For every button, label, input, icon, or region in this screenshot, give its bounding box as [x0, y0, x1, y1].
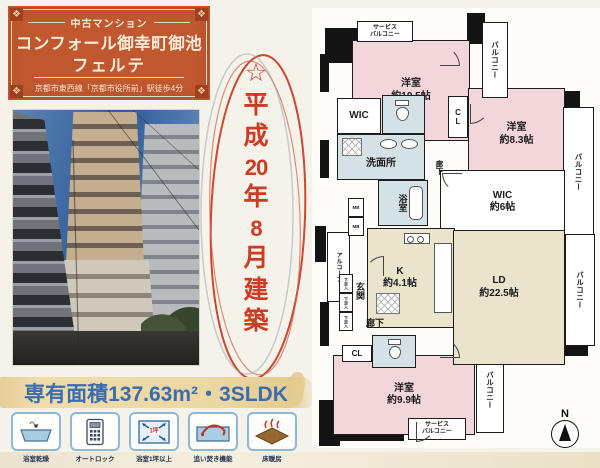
room-size: 約22.5帖	[479, 288, 518, 301]
balcony-label: バルコニー	[575, 271, 586, 309]
floor-heating-icon	[253, 418, 291, 446]
toilet-bowl-icon	[396, 107, 409, 121]
property-category: 中古マンション	[71, 15, 148, 30]
room-living-dining: LD 約22.5帖	[453, 230, 565, 365]
wall-segment	[320, 140, 329, 178]
service-balcony-label: サービス	[370, 25, 400, 32]
sink-icon	[380, 139, 397, 149]
room-label: 洋室 約9.9帖	[387, 383, 421, 408]
wall-segment	[320, 54, 329, 92]
built-date-char: 建	[243, 275, 268, 307]
room-wic-small: WIC	[337, 98, 381, 134]
photo-power-lines	[13, 110, 199, 365]
built-date-char: ☆	[245, 58, 267, 90]
divider	[28, 22, 65, 23]
feature-label: 浴室1坪以上	[136, 453, 172, 463]
service-balcony-label: バルコニー	[370, 32, 400, 39]
balcony-top: バルコニー	[482, 22, 508, 98]
autolock-keypad-icon	[76, 418, 114, 446]
bath-dryer-icon	[17, 418, 55, 446]
room-name: 洋室	[391, 78, 430, 91]
divider	[154, 22, 191, 23]
compass-needle-icon	[559, 424, 571, 441]
property-subtitle: フェルテ	[8, 52, 210, 76]
listing-title-box: ❖ ❖ ❖ ❖ 中古マンション コンフォール御幸町御池 フェルテ 京都市東西線「…	[8, 6, 210, 100]
toilet-tank	[388, 339, 401, 345]
room-label: LD 約22.5帖	[479, 275, 518, 300]
room-washroom: 洗面所	[337, 134, 425, 180]
built-date-char: 成	[243, 121, 268, 153]
kitchen-counter	[434, 243, 452, 313]
shoe-cabinet-label: 下足入	[343, 278, 349, 290]
shoe-cabinet-label: 下足入	[343, 316, 349, 328]
washer-space	[342, 138, 362, 156]
built-date-char: 8	[250, 214, 261, 244]
area-banner: 専有面積137.63m²・3SLDK	[0, 377, 312, 408]
toilet-room-top	[382, 95, 425, 134]
closet-bottom: CL	[342, 345, 372, 362]
room-name: WIC	[490, 190, 516, 203]
room-label: 洋室 約8.3帖	[500, 122, 534, 147]
feature-label: 追い焚き機能	[194, 453, 233, 463]
compass-circle	[551, 420, 579, 448]
property-title: コンフォール御幸町御池	[8, 30, 210, 54]
feature-floor-heating: 床暖房	[246, 412, 298, 464]
feature-label: 床暖房	[262, 453, 282, 463]
shoe-cabinet: 下足入	[339, 274, 353, 293]
feature-autolock: オートロック	[69, 412, 121, 464]
balcony-label: バルコニー	[485, 371, 496, 409]
sink-icon	[401, 139, 418, 149]
station-access-text: 京都市東西線「京都市役所前」駅徒歩4分	[8, 83, 210, 94]
feature-bath-size: 1坪 浴室1坪以上	[128, 412, 180, 464]
room-size: 約9.9帖	[387, 395, 421, 408]
built-date-char: 年	[243, 182, 268, 214]
room-name: 洗面所	[366, 158, 396, 171]
meter-box: MB	[348, 217, 364, 236]
building-photo	[13, 110, 199, 365]
feature-label: 浴室乾燥	[23, 453, 49, 463]
toilet-tank	[395, 100, 409, 106]
entrance-label: 玄関	[354, 282, 367, 300]
toilet-bowl-icon	[389, 346, 401, 359]
room-name: 洋室	[500, 122, 534, 135]
shoe-cabinet: 下足入	[339, 293, 353, 312]
shoe-cabinet: 下足入	[339, 312, 353, 331]
closet-label: CL	[352, 349, 363, 359]
room-size: 約4.1帖	[383, 278, 417, 291]
room-size: 約6帖	[490, 202, 516, 215]
stove-icon	[404, 233, 430, 244]
shoe-cabinet-label: 下足入	[343, 297, 349, 309]
hallway-label: 廊下	[366, 318, 384, 329]
room-label: サービス バルコニー	[370, 25, 400, 39]
bath-size-icon-text: 1坪	[148, 428, 159, 435]
meter-box: MB	[348, 198, 364, 217]
floorplan: 洋室 約10.5帖 洋室 約8.3帖 洋室 約9.9帖 サービス バルコニー サ…	[312, 8, 600, 448]
room-label: WIC 約6帖	[490, 190, 516, 215]
built-date-char: 月	[243, 243, 268, 275]
room-size: 約8.3帖	[500, 135, 534, 148]
closet-top: CL	[448, 96, 468, 138]
balcony-label: バルコニー	[490, 41, 501, 79]
room-bath: 浴室	[378, 180, 428, 226]
built-date-char: 20	[245, 153, 267, 183]
built-date-char: 築	[243, 306, 268, 338]
compass-north-label: N	[550, 408, 580, 420]
wall-segment	[315, 226, 326, 262]
corner-ornament-icon: ❖	[10, 8, 23, 21]
service-balcony-top: サービス バルコニー	[357, 21, 413, 42]
room-name: WIC	[349, 110, 368, 123]
room-name: LD	[479, 275, 518, 288]
room-name: K	[383, 266, 417, 279]
floor-area-text: 専有面積137.63m²・3SLDK	[24, 378, 288, 408]
built-date-vertical-text: ☆ 平 成 20 年 8 月 建 築	[231, 58, 281, 338]
feature-bath-dryer: 浴室乾燥	[10, 412, 62, 464]
entrance-floor	[376, 293, 400, 314]
reheat-function-icon	[194, 418, 232, 446]
room-label: K 約4.1帖	[383, 266, 417, 291]
meter-box-label: MB	[353, 205, 360, 211]
closet-label: CL	[454, 108, 463, 126]
corner-ornament-icon: ❖	[195, 8, 208, 21]
bathtub-icon	[409, 186, 423, 220]
built-date-char: 平	[243, 90, 268, 122]
balcony-right-upper: バルコニー	[563, 107, 594, 236]
wall-segment	[320, 302, 329, 346]
meter-box-label: MB	[353, 224, 360, 230]
feature-badges: 浴室乾燥 オートロック	[10, 412, 302, 464]
toilet-room-bottom	[372, 335, 416, 368]
balcony-right-middle: バルコニー	[565, 234, 595, 346]
divider	[34, 77, 184, 78]
room-bedroom2: 洋室 約8.3帖	[468, 88, 565, 181]
room-name: 浴室	[397, 194, 410, 212]
north-compass: N	[550, 408, 580, 448]
feature-label: オートロック	[76, 453, 115, 463]
room-name: 洋室	[387, 383, 421, 396]
balcony-label: バルコニー	[573, 153, 584, 191]
feature-reheat: 追い焚き機能	[187, 412, 239, 464]
